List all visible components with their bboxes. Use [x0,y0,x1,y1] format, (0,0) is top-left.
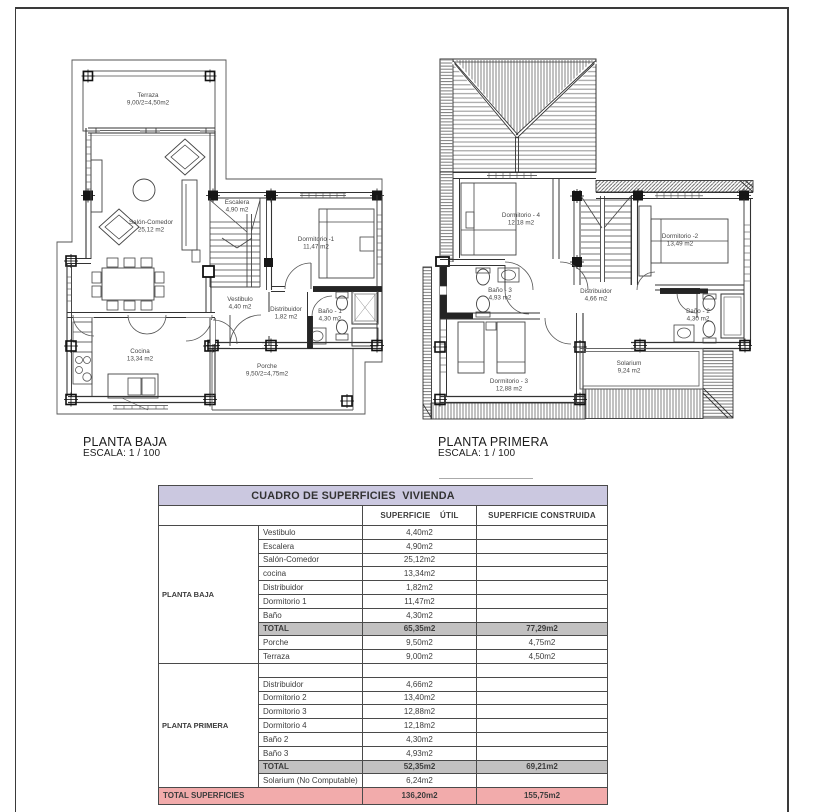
svg-text:11,47 m2: 11,47 m2 [303,244,329,251]
svg-text:Dormitorio - 4: Dormitorio - 4 [502,212,541,219]
svg-text:4,93 m2: 4,93 m2 [489,295,512,302]
svg-text:Escalera: Escalera [225,199,250,206]
svg-text:1,82 m2: 1,82 m2 [275,314,298,321]
svg-text:4,90 m2: 4,90 m2 [226,207,249,214]
svg-text:4,40 m2: 4,40 m2 [229,304,252,311]
svg-text:12,88 m2: 12,88 m2 [496,386,523,393]
svg-text:9,00/2=4,50m2: 9,00/2=4,50m2 [127,100,170,107]
svg-text:Terraza: Terraza [138,92,159,99]
svg-text:Dormitorio -2: Dormitorio -2 [662,233,699,240]
svg-text:12,18 m2: 12,18 m2 [508,220,535,227]
svg-text:Dormitorio -1: Dormitorio -1 [298,236,335,243]
svg-text:13,49 m2: 13,49 m2 [667,241,694,248]
svg-text:9,24 m2: 9,24 m2 [618,368,641,375]
svg-text:Vestibulo: Vestibulo [227,296,253,303]
svg-text:Solarium: Solarium [617,360,642,367]
svg-text:Porche: Porche [257,363,277,370]
svg-text:Baño - 3: Baño - 3 [488,287,512,294]
svg-text:25,12 m2: 25,12 m2 [138,227,165,234]
svg-text:Distribuidor: Distribuidor [270,306,302,313]
svg-text:4,66 m2: 4,66 m2 [585,296,608,303]
svg-text:13,34 m2: 13,34 m2 [127,356,154,363]
svg-text:Distribuidor: Distribuidor [580,288,612,295]
svg-text:9,50/2=4,75m2: 9,50/2=4,75m2 [246,371,289,378]
svg-text:Salón-Comedor: Salón-Comedor [129,219,173,226]
svg-text:Dormitorio - 3: Dormitorio - 3 [490,378,529,385]
svg-text:Cocina: Cocina [130,348,150,355]
